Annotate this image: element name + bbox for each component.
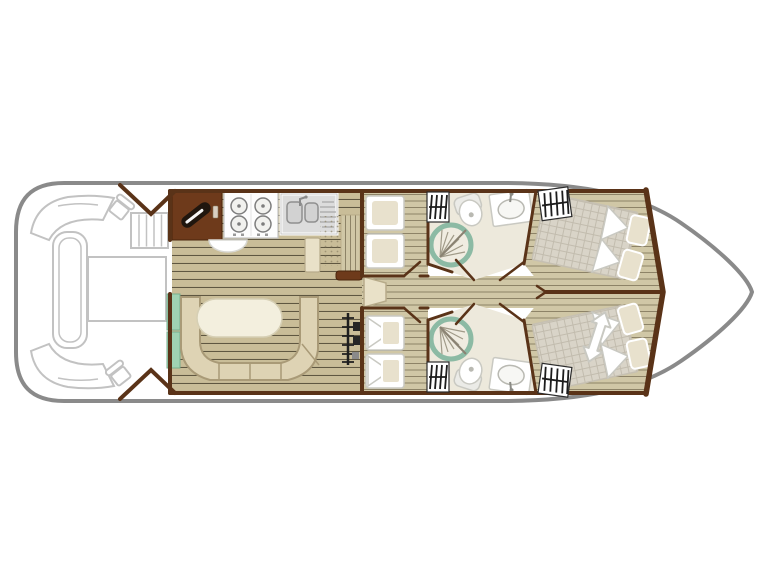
shelf [336, 271, 362, 280]
corridor-step [364, 277, 386, 307]
washbasin [489, 357, 533, 394]
wardrobe-mid-port [427, 192, 449, 222]
entry-steps [131, 213, 168, 248]
bed-4 [366, 354, 404, 388]
louver-cabinet [341, 215, 360, 271]
wardrobe-bow-port [538, 187, 572, 221]
bed-2-pillow [371, 238, 399, 264]
tall-cabinet [305, 238, 320, 272]
floor-plan-canvas [0, 0, 768, 576]
bed-1-pillow [371, 200, 399, 226]
side-bench [53, 232, 87, 348]
washbasin [489, 189, 533, 226]
wardrobe-bow-starboard [538, 363, 572, 397]
cabinet-handle [213, 206, 218, 218]
hob-4-burner [224, 192, 278, 238]
round-shower [431, 225, 471, 265]
rug [320, 216, 340, 266]
round-shower [431, 319, 471, 359]
corridor-floor [362, 276, 548, 308]
deck-table [88, 257, 166, 321]
boat-floor-plan [0, 0, 768, 576]
wardrobe-mid-starboard [427, 362, 449, 392]
oval-table [197, 299, 282, 337]
bed-3 [366, 316, 404, 350]
